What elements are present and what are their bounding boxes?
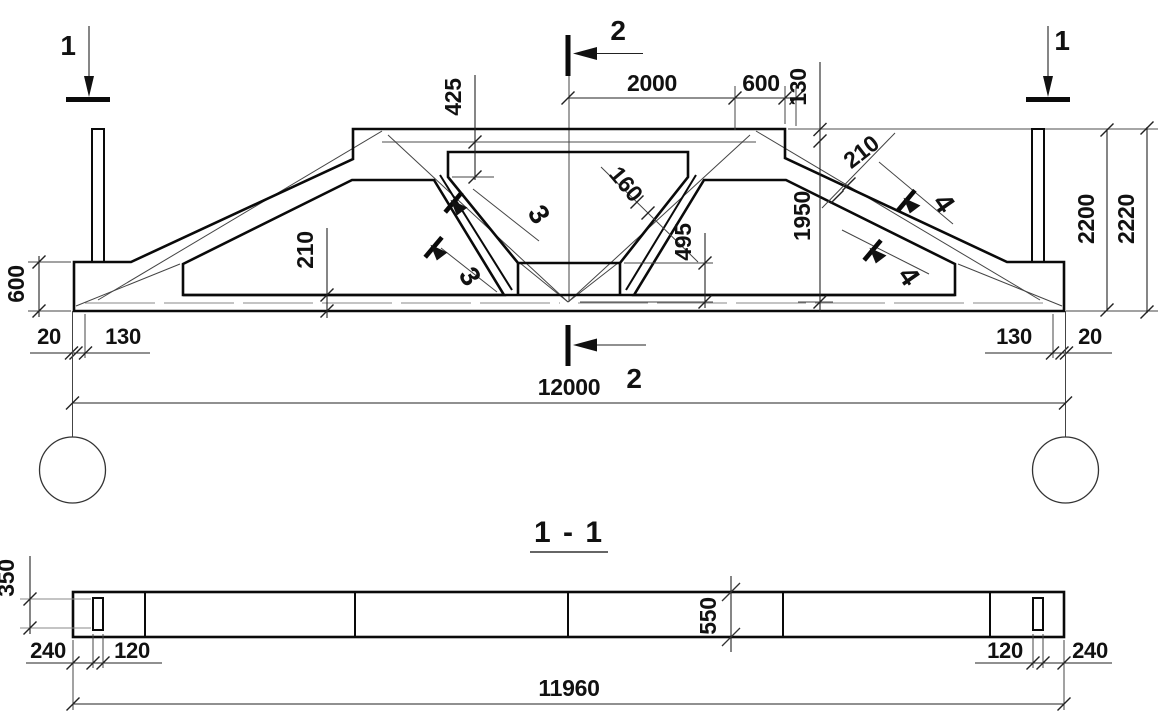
dim-240-right: 240 (1072, 638, 1108, 663)
detail-markers-4: 4 4 (842, 162, 961, 292)
dim-240-120-left: 240 120 (26, 634, 162, 710)
dim-600-left-label: 600 (3, 265, 29, 302)
detail-3-lower-label: 3 (453, 261, 487, 290)
section-post-right (1033, 598, 1043, 630)
dim-bottom-left: 20 130 (30, 314, 150, 360)
section-2-top-label: 2 (610, 15, 625, 46)
section-view-1-1: 1 - 1 350 550 (0, 516, 1112, 711)
elevation-view: 1 1 2 2 3 3 (3, 15, 1158, 503)
section-2-bottom-label: 2 (626, 363, 641, 394)
dim-130-right: 130 (996, 324, 1032, 349)
dim-130-top: 130 (785, 68, 811, 105)
detail-4-upper-label: 4 (927, 188, 962, 219)
dim-600-top: 600 (742, 70, 779, 96)
dim-2220-label: 2220 (1113, 194, 1139, 244)
dim-495-label: 495 (670, 223, 696, 261)
dim-20-right: 20 (1078, 324, 1102, 349)
section-mark-1-left: 1 (60, 26, 110, 100)
dim-210-slope-label: 210 (838, 130, 884, 174)
dim-11960-label: 11960 (538, 675, 599, 701)
truss-technical-drawing: 1 1 2 2 3 3 (0, 0, 1161, 718)
dim-120-240-right: 120 240 (975, 634, 1112, 710)
right-post (1032, 129, 1044, 262)
dim-350-label: 350 (0, 559, 19, 596)
section-title: 1 - 1 (534, 516, 604, 549)
section-1-left-label: 1 (60, 30, 75, 61)
dim-130-left: 130 (105, 324, 141, 349)
left-post (92, 129, 104, 262)
dim-120-right: 120 (987, 638, 1023, 663)
detail-3-upper-label: 3 (522, 199, 556, 228)
dim-bottom-right: 130 20 (985, 314, 1112, 360)
section-mark-1-right: 1 (1026, 25, 1070, 100)
dim-120-left: 120 (114, 638, 150, 663)
dim-2000: 2000 (627, 70, 677, 96)
dim-240-left: 240 (30, 638, 66, 663)
dim-550-label: 550 (695, 597, 721, 634)
dim-1950-label: 1950 (789, 191, 815, 241)
dim-12000: 12000 (538, 374, 600, 400)
detail-4-lower-label: 4 (892, 261, 927, 292)
dim-210-chord: 210 (292, 228, 334, 318)
dim-2200-label: 2200 (1073, 194, 1099, 244)
dim-2200-2220: 2200 2220 (1073, 122, 1154, 319)
dim-350: 350 (0, 556, 91, 635)
dim-160-label: 160 (604, 161, 648, 206)
dim-550: 550 (695, 576, 740, 652)
dim-600-left: 600 (3, 256, 71, 318)
dim-11960: 11960 (67, 675, 1071, 711)
section-mark-2-top: 2 (568, 15, 643, 76)
dim-210-slope: 210 (822, 130, 895, 208)
dim-210-chord-label: 210 (292, 231, 318, 268)
section-1-right-label: 1 (1054, 25, 1069, 56)
dim-20-left: 20 (37, 324, 61, 349)
drawing-page: 1 1 2 2 3 3 (0, 0, 1161, 718)
section-post-left (93, 598, 103, 630)
grid-bubble-right (1033, 437, 1099, 503)
grid-bubble-left (40, 437, 106, 503)
dim-425-label: 425 (440, 78, 466, 116)
dim-top-chain: 2000 600 130 (562, 68, 812, 130)
